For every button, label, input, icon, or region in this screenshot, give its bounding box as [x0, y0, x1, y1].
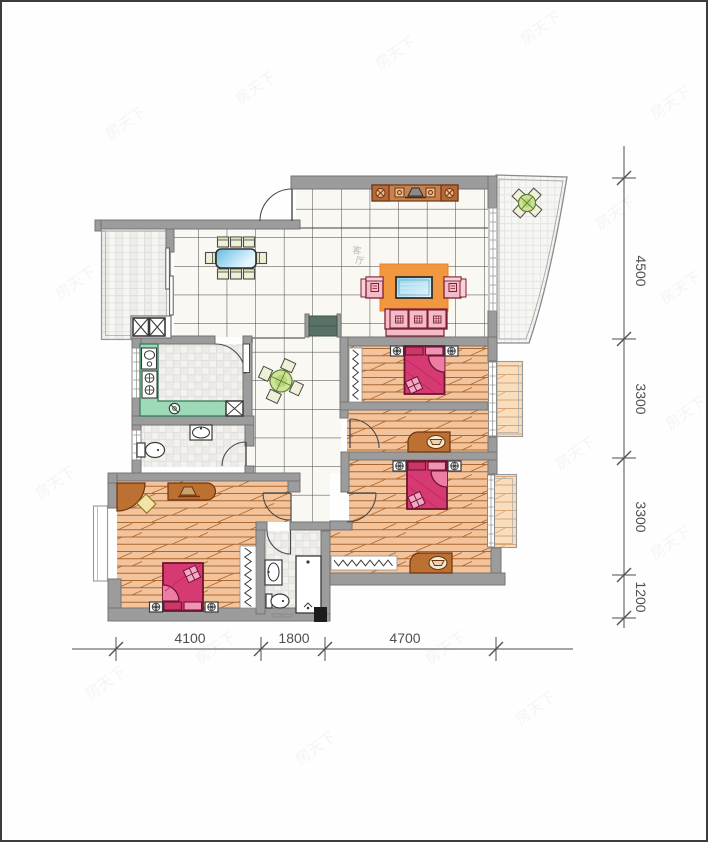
svg-text:4100: 4100	[174, 630, 205, 646]
svg-text:4500: 4500	[633, 255, 649, 286]
svg-text:1800: 1800	[278, 630, 309, 646]
svg-text:厅: 厅	[355, 255, 365, 266]
svg-text:4700: 4700	[389, 630, 420, 646]
svg-text:3300: 3300	[633, 383, 649, 414]
svg-text:3300: 3300	[633, 501, 649, 532]
svg-text:1200: 1200	[633, 581, 649, 612]
